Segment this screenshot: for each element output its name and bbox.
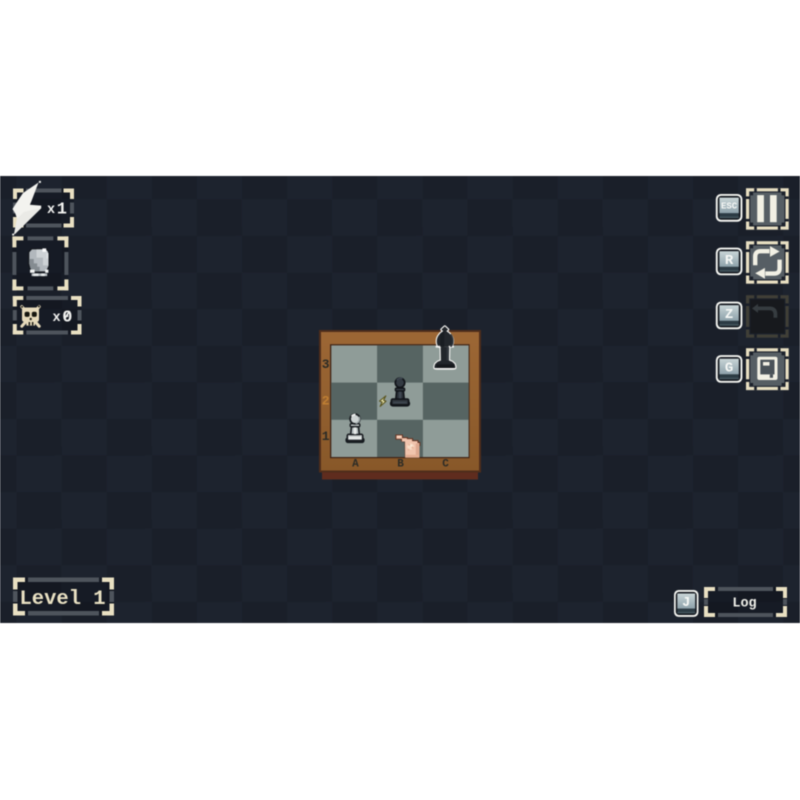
svg-text:0: 0 <box>62 309 72 328</box>
svg-text:2: 2 <box>322 394 330 409</box>
svg-text:3: 3 <box>322 357 330 372</box>
svg-text:Z: Z <box>725 307 733 323</box>
svg-text:J: J <box>682 596 690 611</box>
svg-text:R: R <box>725 253 734 269</box>
svg-text:x: x <box>52 311 60 326</box>
svg-text:ESC: ESC <box>721 202 738 212</box>
svg-text:B: B <box>397 459 404 471</box>
svg-text:1: 1 <box>322 429 330 444</box>
svg-text:x: x <box>47 203 55 218</box>
svg-text:G: G <box>725 361 733 377</box>
svg-text:Log: Log <box>732 597 756 612</box>
svg-text:C: C <box>442 459 449 471</box>
svg-text:A: A <box>352 459 359 471</box>
svg-text:1: 1 <box>57 200 67 219</box>
svg-text:Level 1: Level 1 <box>20 588 106 611</box>
